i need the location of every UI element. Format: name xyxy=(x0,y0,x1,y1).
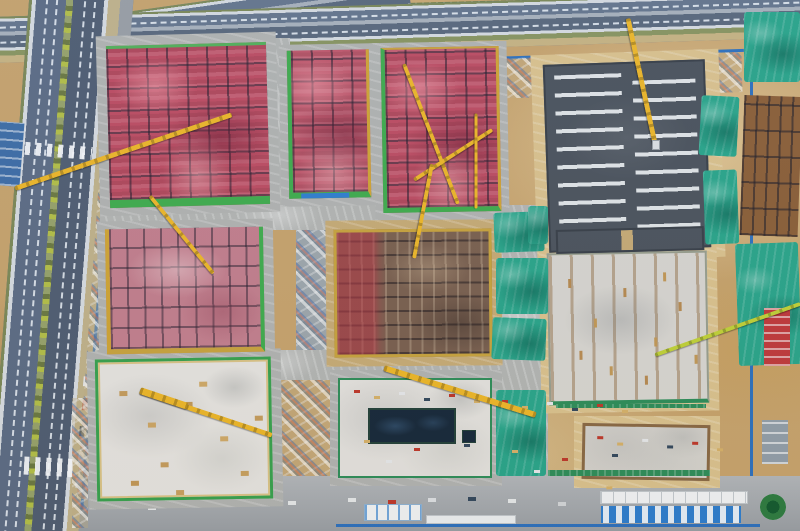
striped-slab-right xyxy=(547,251,710,406)
blue-container-row xyxy=(601,506,741,523)
small-pit xyxy=(462,430,476,443)
teal-tarp xyxy=(528,206,548,244)
dark-band-upper xyxy=(556,226,705,254)
timber-planks xyxy=(553,259,556,268)
white-container-row xyxy=(600,491,748,504)
crane-boom xyxy=(475,114,478,209)
long-white-container xyxy=(426,515,516,524)
teal-tarp xyxy=(491,317,546,361)
white-trailers xyxy=(364,504,422,521)
teal-tarp xyxy=(698,95,739,157)
green-edge-bottom-right xyxy=(548,470,710,476)
teal-tarp xyxy=(496,258,548,314)
teal-tarp-northeast xyxy=(744,12,800,82)
deck-top-right-red xyxy=(381,46,502,213)
curing-strips-left xyxy=(555,73,627,243)
materials-clutter xyxy=(344,382,350,385)
teal-tarp xyxy=(703,169,740,244)
crane-hook-block xyxy=(652,140,660,150)
curing-strips-right xyxy=(632,78,701,240)
deck-mid-left-pink xyxy=(105,227,265,355)
circular-pond xyxy=(760,494,786,520)
site-fence-south xyxy=(336,524,760,527)
deck-top-left-red xyxy=(106,42,270,208)
green-edge-mid-right xyxy=(556,404,706,408)
lane-dash xyxy=(2,0,50,531)
dark-concrete-slab xyxy=(543,59,711,253)
rebar-grid-field xyxy=(740,95,800,237)
timber-planks xyxy=(100,364,106,367)
materials-clutter xyxy=(492,392,498,395)
aerial-photo-construction-site xyxy=(0,0,800,531)
materials-clutter xyxy=(587,428,593,431)
gray-containers xyxy=(762,420,788,464)
deck-top-mid-red xyxy=(287,49,372,198)
excavation-pit xyxy=(368,408,456,444)
blue-banner xyxy=(301,193,349,199)
